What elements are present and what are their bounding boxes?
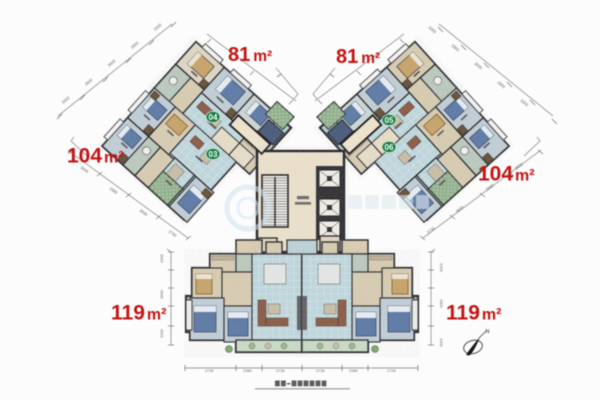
svg-text:3600: 3600 xyxy=(159,289,164,299)
svg-text:06: 06 xyxy=(385,143,394,152)
svg-text:N: N xyxy=(486,329,490,335)
svg-text:2730: 2730 xyxy=(387,368,397,373)
svg-text:03: 03 xyxy=(209,150,218,159)
svg-text:05: 05 xyxy=(385,116,394,125)
svg-text:3300: 3300 xyxy=(159,328,164,338)
svg-text:04: 04 xyxy=(209,113,218,122)
svg-text:2980: 2980 xyxy=(243,368,253,373)
svg-text:3600: 3600 xyxy=(439,299,444,309)
svg-text:2980: 2980 xyxy=(349,368,359,373)
svg-text:2730: 2730 xyxy=(276,368,286,373)
svg-text:81m²: 81m² xyxy=(336,46,380,68)
svg-text:2730: 2730 xyxy=(316,368,326,373)
svg-text:3300: 3300 xyxy=(159,253,164,263)
svg-text:3300: 3300 xyxy=(439,338,444,348)
svg-text:2730: 2730 xyxy=(205,368,215,373)
svg-text:81m²: 81m² xyxy=(228,44,272,66)
svg-text:3300: 3300 xyxy=(439,263,444,273)
